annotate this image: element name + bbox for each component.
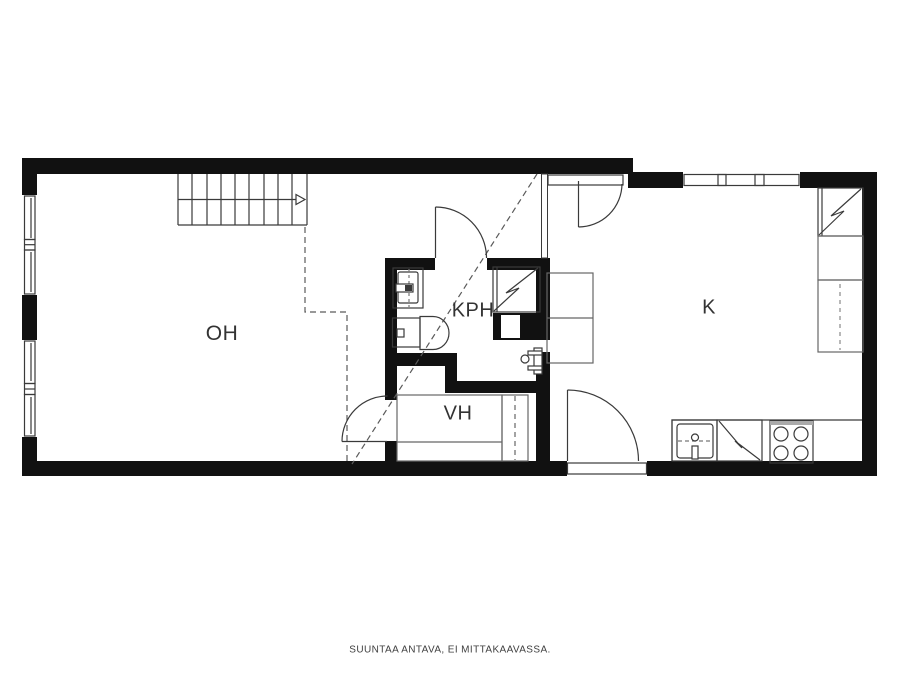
fridge-icon xyxy=(818,188,863,236)
wall xyxy=(445,381,550,393)
walls xyxy=(22,158,877,476)
wall xyxy=(22,295,37,340)
wall xyxy=(22,158,37,195)
room-label-k: K xyxy=(702,297,716,320)
room-label-kph: KPH xyxy=(452,300,495,323)
window-icon xyxy=(22,340,37,437)
door-arc-icon xyxy=(567,390,647,476)
window-icon xyxy=(22,195,37,295)
duct-icon xyxy=(493,313,540,340)
wall xyxy=(22,437,37,476)
footer-note: SUUNTAA ANTAVA, EI MITTAKAAVASSA. xyxy=(349,645,550,656)
water-heater-icon xyxy=(493,267,540,312)
stairs-direction-arrow-icon xyxy=(296,195,305,205)
door-arc-icon xyxy=(548,175,623,227)
tap-icon xyxy=(521,348,542,374)
kitchen-sink-icon xyxy=(672,420,717,461)
kitchen-cabinet-icon xyxy=(818,280,863,352)
floor-plan: OH KPH VH K SUUNTAA ANTAVA, EI MITTAKAAV… xyxy=(0,0,900,675)
wall xyxy=(22,158,633,174)
sink-icon xyxy=(393,268,423,308)
partition-line xyxy=(542,174,548,258)
window-icon xyxy=(683,172,800,188)
ceiling-height-dashed-line xyxy=(305,227,347,461)
room-label-vh: VH xyxy=(444,403,473,426)
stove-icon xyxy=(770,421,813,463)
kitchen-fixtures xyxy=(672,188,863,463)
wall xyxy=(647,461,877,476)
room-label-oh: OH xyxy=(206,322,239,346)
floor-plan-drawing xyxy=(0,0,900,675)
wall xyxy=(628,172,683,188)
wall xyxy=(22,461,567,476)
wall xyxy=(385,441,397,471)
wall xyxy=(862,172,877,476)
wall xyxy=(385,258,397,400)
stairs-icon xyxy=(178,174,307,225)
toilet-icon xyxy=(393,317,450,350)
door-arc-icon xyxy=(436,207,487,258)
hall-cabinet-icon xyxy=(547,273,593,363)
dishwasher-icon xyxy=(717,420,762,461)
windows xyxy=(22,172,800,437)
kitchen-cabinet-icon xyxy=(818,236,863,280)
